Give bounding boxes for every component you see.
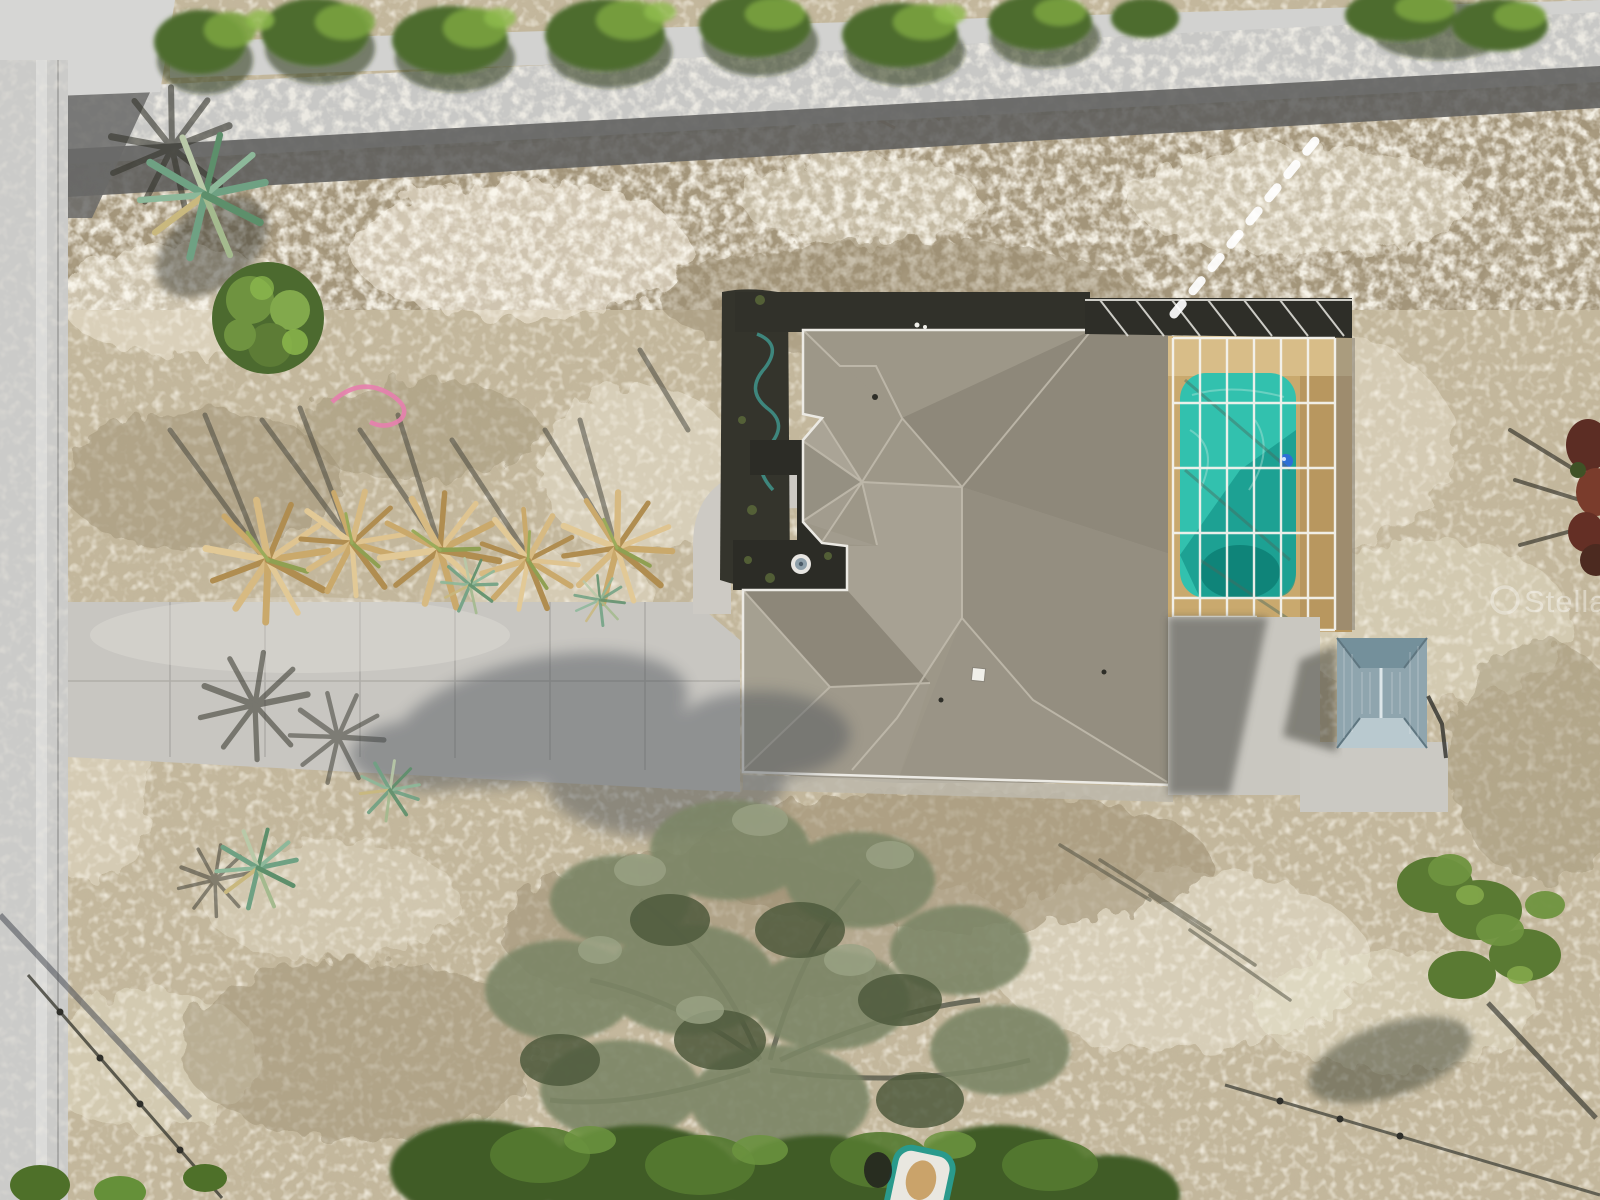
watermark-text: StellarMLS <box>1524 584 1600 619</box>
aerial-photo: StellarMLS <box>0 0 1600 1200</box>
pool-deep-end <box>1200 545 1280 599</box>
gazebo-pad <box>1300 742 1448 812</box>
roof-vent <box>971 667 985 681</box>
round-tree <box>212 262 324 374</box>
side-road <box>0 60 68 1200</box>
